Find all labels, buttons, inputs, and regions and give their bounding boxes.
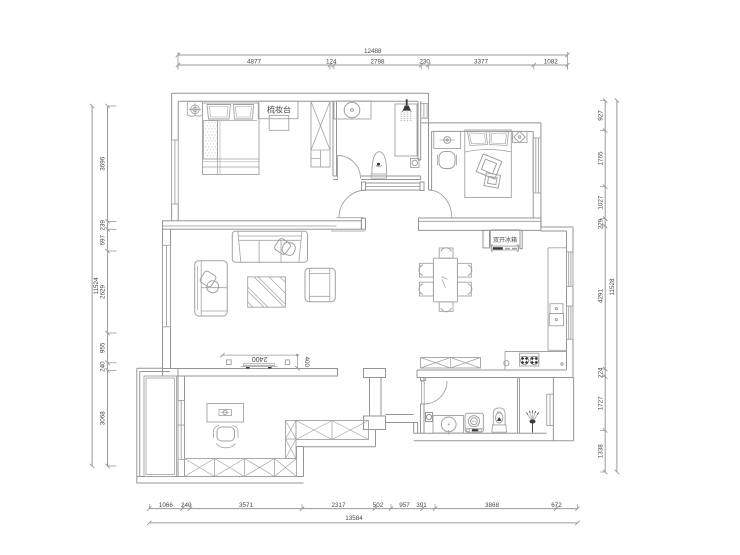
svg-text:3696: 3696 — [99, 156, 106, 171]
svg-text:240: 240 — [99, 361, 106, 372]
svg-text:2798: 2798 — [370, 58, 385, 65]
svg-text:3571: 3571 — [239, 502, 254, 509]
svg-text:11528: 11528 — [609, 278, 616, 296]
svg-text:1066: 1066 — [159, 502, 174, 509]
svg-text:12488: 12488 — [364, 48, 382, 55]
svg-text:2629: 2629 — [99, 285, 106, 300]
svg-text:239: 239 — [99, 220, 106, 231]
svg-text:3868: 3868 — [485, 502, 500, 509]
svg-text:双开冰箱: 双开冰箱 — [493, 236, 517, 244]
svg-text:1027: 1027 — [598, 195, 605, 210]
svg-text:1765: 1765 — [598, 151, 605, 166]
svg-text:梳妆台: 梳妆台 — [267, 104, 291, 114]
svg-text:927: 927 — [598, 110, 605, 121]
svg-text:1727: 1727 — [598, 396, 605, 411]
svg-text:697: 697 — [99, 234, 106, 245]
svg-text:3377: 3377 — [474, 58, 489, 65]
svg-text:124: 124 — [326, 58, 337, 65]
svg-text:2317: 2317 — [331, 502, 346, 509]
svg-text:229: 229 — [598, 218, 605, 229]
svg-text:1338: 1338 — [598, 444, 605, 459]
svg-text:502: 502 — [373, 502, 384, 509]
svg-text:955: 955 — [99, 342, 106, 353]
svg-text:3068: 3068 — [99, 411, 106, 426]
svg-text:391: 391 — [416, 502, 427, 509]
svg-text:2400: 2400 — [252, 355, 268, 362]
svg-text:13584: 13584 — [345, 515, 363, 522]
svg-text:1082: 1082 — [544, 58, 559, 65]
svg-text:4877: 4877 — [247, 58, 262, 65]
svg-text:957: 957 — [399, 502, 410, 509]
svg-text:400: 400 — [303, 357, 310, 368]
svg-text:230: 230 — [419, 58, 430, 65]
svg-text:672: 672 — [551, 502, 562, 509]
svg-text:4291: 4291 — [598, 289, 605, 304]
